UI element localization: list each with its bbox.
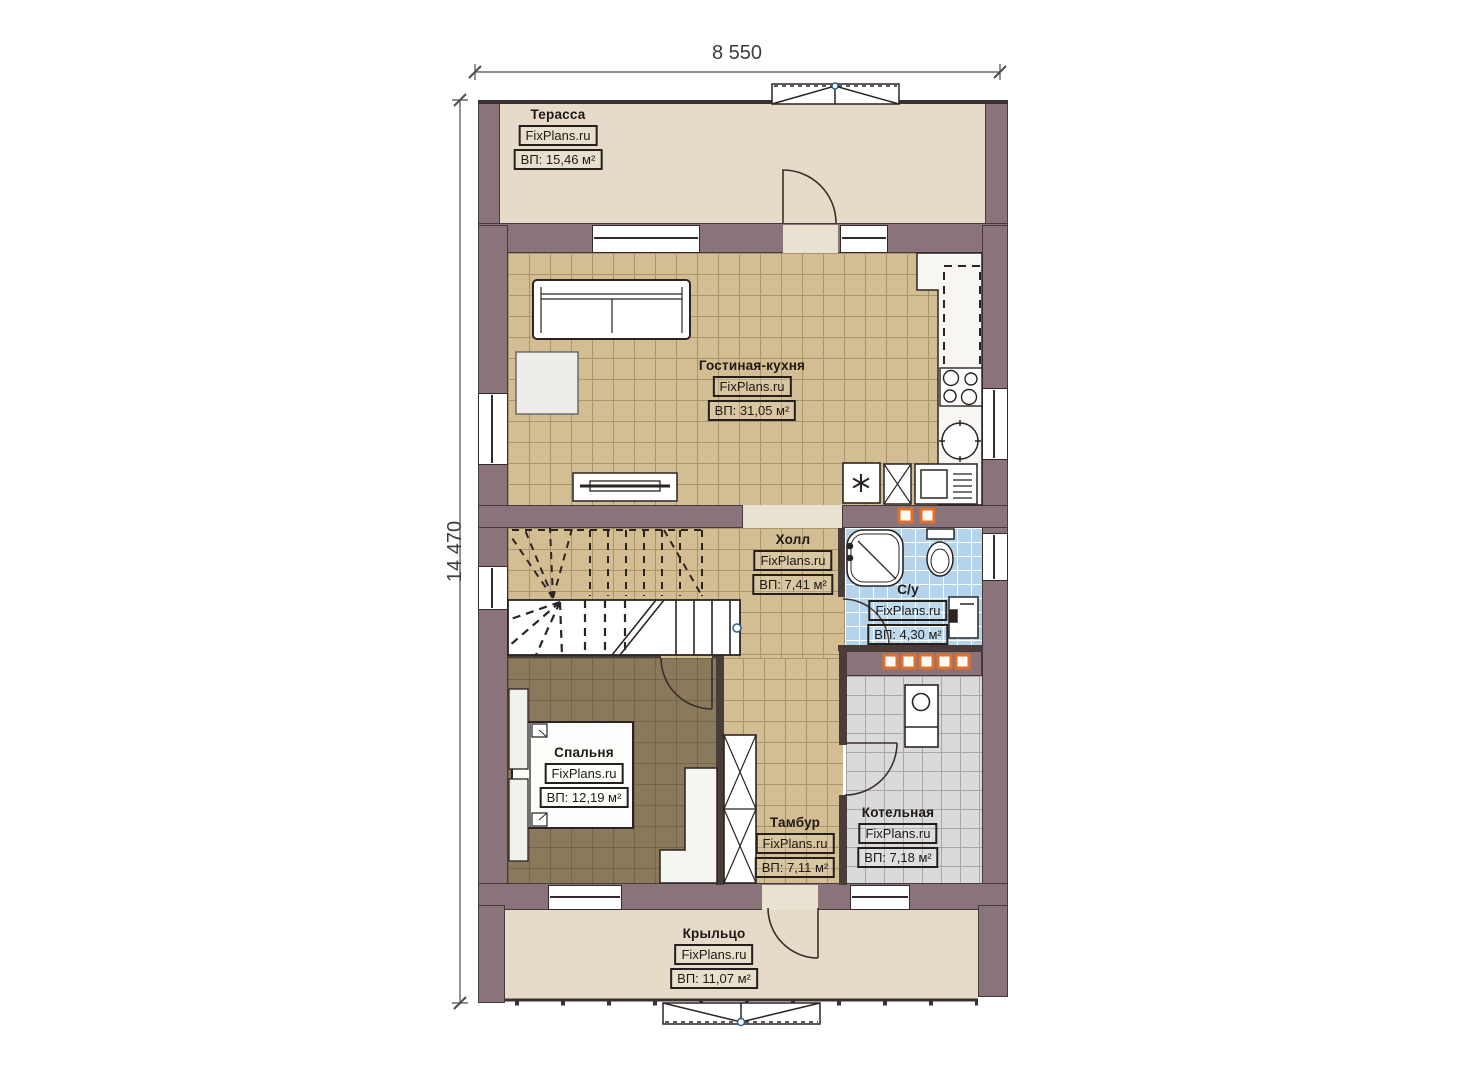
vestibule-boiler-wall-top — [839, 651, 847, 745]
room-area: ВП: 11,07 м² — [670, 968, 758, 989]
room-name: Спальня — [554, 745, 614, 760]
room-label-bedroom: Спальня FixPlans.ru ВП: 12,19 м² — [540, 745, 629, 808]
hall-bathroom-wall — [838, 528, 845, 597]
room-name: Крыльцо — [683, 926, 746, 941]
porch-right-wall — [978, 905, 1008, 997]
porch-left-wall — [478, 905, 505, 1003]
room-name: С/у — [897, 582, 919, 597]
room-area: ВП: 7,41 м² — [752, 574, 833, 595]
porch-steps-icon — [663, 1003, 820, 1026]
window-terrace-left — [592, 225, 700, 253]
room-name: Холл — [776, 532, 811, 547]
window-boiler-bottom — [850, 885, 910, 910]
window-kitchen-right — [982, 388, 1008, 460]
brand-watermark: FixPlans.ru — [868, 600, 947, 621]
bath-boiler-wall — [845, 651, 982, 676]
room-area: ВП: 15,46 м² — [514, 149, 603, 170]
brand-watermark: FixPlans.ru — [858, 823, 937, 844]
room-name: Тамбур — [770, 815, 820, 830]
window-bedroom-bottom — [548, 885, 622, 910]
room-label-porch: Крыльцо FixPlans.ru ВП: 11,07 м² — [670, 926, 758, 989]
bedroom-top-wall-2 — [712, 648, 724, 658]
room-area: ВП: 31,05 м² — [708, 400, 797, 421]
room-label-hall: Холл FixPlans.ru ВП: 7,41 м² — [752, 532, 833, 595]
brand-watermark: FixPlans.ru — [712, 376, 791, 397]
terrace-steps-icon — [772, 83, 899, 104]
floor-plan: Терасса FixPlans.ru ВП: 15,46 м² Гостина… — [0, 0, 1473, 1080]
brand-watermark: FixPlans.ru — [518, 125, 597, 146]
terrace-bottom-wall — [478, 223, 1008, 253]
brand-watermark: FixPlans.ru — [674, 944, 753, 965]
terrace-right-wall — [985, 100, 1008, 225]
bedroom-vestibule-wall — [716, 658, 724, 885]
window-terrace-right — [840, 225, 888, 253]
dimension-width-label: 8 550 — [712, 42, 762, 65]
room-area: ВП: 4,30 м² — [867, 624, 948, 645]
window-hall-left — [478, 566, 508, 610]
room-label-vestibule: Тамбур FixPlans.ru ВП: 7,11 м² — [755, 815, 835, 878]
living-hall-wall-right — [842, 505, 1008, 528]
brand-watermark: FixPlans.ru — [544, 763, 623, 784]
room-label-terrace: Терасса FixPlans.ru ВП: 15,46 м² — [514, 107, 603, 170]
room-area: ВП: 7,11 м² — [755, 857, 835, 878]
room-label-bathroom: С/у FixPlans.ru ВП: 4,30 м² — [867, 582, 948, 645]
porch-door-opening — [762, 885, 818, 910]
room-area: ВП: 12,19 м² — [540, 787, 629, 808]
vestibule-boiler-wall-bottom — [839, 795, 847, 885]
room-name: Терасса — [531, 107, 586, 122]
bedroom-top-wall — [508, 648, 661, 658]
room-name: Котельная — [862, 805, 934, 820]
room-label-boiler: Котельная FixPlans.ru ВП: 7,18 м² — [857, 805, 938, 868]
living-hall-opening — [743, 505, 842, 528]
room-name: Гостиная-кухня — [699, 358, 805, 373]
room-area: ВП: 7,18 м² — [857, 847, 938, 868]
terrace-left-wall — [478, 100, 500, 225]
terrace-door-opening — [783, 225, 838, 253]
window-living-left — [478, 393, 508, 465]
dimension-height-label: 14 470 — [444, 521, 467, 582]
bathroom-bottom-wall — [838, 645, 982, 651]
brand-watermark: FixPlans.ru — [755, 833, 834, 854]
room-label-living: Гостиная-кухня FixPlans.ru ВП: 31,05 м² — [699, 358, 805, 421]
brand-watermark: FixPlans.ru — [753, 550, 832, 571]
window-bathroom-right — [982, 533, 1008, 581]
living-hall-wall-left — [478, 505, 743, 528]
